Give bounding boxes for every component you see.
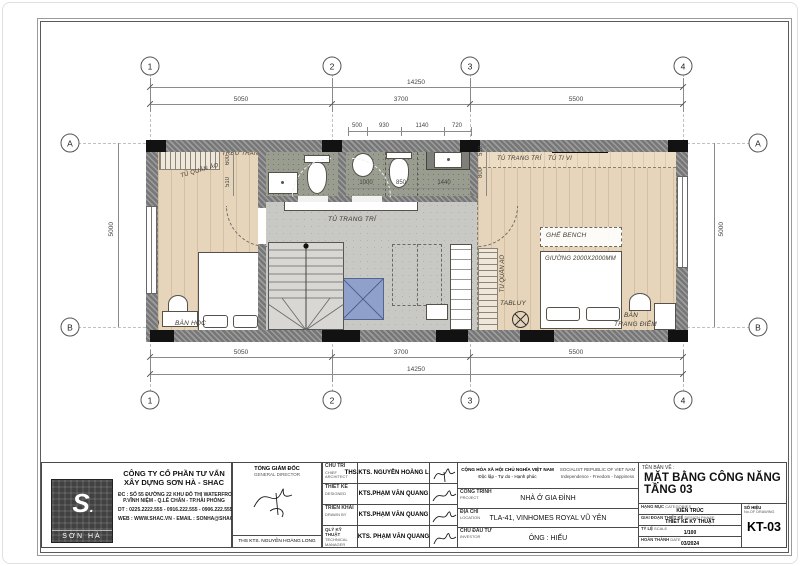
label-tabluy: TABLUY — [500, 300, 526, 307]
storage-divider — [417, 244, 418, 306]
role-en: DRAWN BY — [323, 512, 357, 518]
logo-text: SƠN HÀ — [52, 530, 112, 540]
dim-label: 5000 — [718, 222, 725, 236]
dim-label: 14250 — [407, 79, 425, 86]
grid-bubble-A-left: A — [61, 134, 80, 153]
column-block — [668, 330, 688, 342]
grid-bubble-A-right: A — [749, 134, 768, 153]
location-label-en: LOCATION — [460, 515, 480, 520]
grid-bubble-B-left: B — [61, 318, 80, 337]
staff-row-sig — [429, 462, 458, 484]
dim-label: 510 — [478, 146, 484, 156]
fan-symbol — [512, 311, 529, 328]
dim-label: 500 — [352, 123, 362, 129]
republic-en-1: SOCIALIST REPUBLIC OF VIET NAM — [557, 467, 638, 472]
dim-label: 850 — [396, 180, 406, 186]
column-block — [436, 330, 468, 342]
meta-label-vn: HẠNG MỤC — [641, 504, 664, 509]
role-vn: CHỦ TRÌ — [323, 463, 357, 470]
label-tu-trang-tri-right: TỦ TRANG TRÍ — [497, 156, 541, 162]
wall-corridor-left-b — [258, 244, 266, 330]
pillow — [586, 307, 620, 321]
staff-row-name: KTS. PHẠM VĂN QUANG — [357, 525, 430, 548]
grid-bubble-3-top: 3 — [461, 57, 480, 76]
grid-bubble-4-top: 4 — [674, 57, 693, 76]
sink-drain — [447, 158, 450, 161]
ext-line — [150, 78, 151, 112]
role-vn: TRIỂN KHAI — [323, 505, 357, 512]
dim-left — [118, 143, 119, 327]
wardrobe-right — [478, 248, 498, 332]
titleblock-republic: CỘNG HÒA XÃ HỘI CHỦ NGHĨA VIỆT NAM Độc l… — [457, 462, 639, 489]
titleblock-company: S. SƠN HÀ CÔNG TY CỔ PHẦN TƯ VẤN XÂY DỰN… — [41, 462, 232, 548]
staff-name: THS.KTS. NGUYỄN HOÀNG LONG — [345, 470, 443, 476]
project-label-en: PROJECT — [460, 495, 479, 500]
staff-name: KTS. PHẠM VĂN QUANG — [358, 534, 429, 540]
director-title-en: GENERAL DIRECTOR — [233, 472, 321, 477]
dim-label: 5050 — [234, 96, 248, 103]
signature-director — [248, 481, 308, 519]
label-ghe-bench: GHẾ BENCH — [546, 232, 586, 239]
signature — [431, 506, 458, 526]
logo-mark-icon: S. — [66, 486, 100, 520]
small-cabinet — [426, 304, 448, 320]
label-giuong: GIƯỜNG 2000X2000MM — [545, 256, 616, 262]
director-name: THS KTS. NGUYỄN HOÀNG LONG — [233, 535, 321, 547]
dim-label: 600 — [225, 155, 231, 165]
ext-line — [470, 78, 471, 112]
label-trang-diem: TRANG ĐIỂM — [614, 321, 657, 328]
company-web: WEB : WWW.SHAC.VN - EMAIL : SONHA@SHAC.V… — [118, 516, 230, 522]
meta-label-vn: GIAI ĐOẠN THIẾT KẾ — [641, 515, 683, 520]
column-block — [322, 140, 342, 152]
dim-label: 800 — [478, 168, 484, 178]
dim-label: 5500 — [569, 96, 583, 103]
republic-en-2: Independence - Freedom - happiness — [557, 474, 638, 479]
role-en: TECHNICAL MANAGER — [323, 537, 357, 547]
dim-label: 3700 — [394, 96, 408, 103]
stairs — [268, 242, 344, 330]
staff-row-sig — [429, 525, 458, 548]
grid-bubble-B-right: B — [749, 318, 768, 337]
column-block — [322, 330, 360, 342]
company-addr-2: P.VĨNH NIỆM - Q.LÊ CHÂN - TP.HẢI PHÒNG — [118, 498, 230, 504]
location-value: TLA-41, VINHOMES ROYAL VŨ YÊN — [458, 515, 638, 522]
titleblock-drawing-title: TÊN BẢN VẼ : MẶT BẰNG CÔNG NĂNG TẦNG 03 — [638, 462, 787, 504]
dim-label: 1440 — [437, 180, 450, 186]
drawing-title-1: MẶT BẰNG CÔNG NĂNG — [639, 472, 786, 484]
meta-label-vn: HOÀN THÀNH — [641, 537, 669, 542]
wall-bath-a — [258, 152, 266, 202]
wall-bath-b — [338, 152, 346, 202]
dim-label: 5000 — [108, 222, 115, 236]
number-label-en: No.OF DRAWING — [742, 510, 786, 514]
staff-row-name: THS.KTS. NGUYỄN HOÀNG LONG — [357, 462, 430, 484]
staff-row-sig — [429, 483, 458, 505]
dim-top-segments — [150, 104, 683, 105]
titleblock-location: ĐỊA CHỈLOCATION TLA-41, VINHOMES ROYAL V… — [457, 508, 639, 528]
meta-label-en: DESIGN PHASE — [685, 515, 715, 520]
drawing-sheet: TREO TRANH TỦ QUẦN ÁO BÀN HỌC TỦ TRANG T… — [0, 0, 800, 566]
dim-chain-left — [233, 152, 234, 196]
sink-drain — [281, 181, 284, 184]
company-logo: S. SƠN HÀ — [51, 479, 113, 543]
signature — [431, 485, 458, 505]
staff-row-sig — [429, 504, 458, 526]
dim-label: 1000 — [359, 180, 372, 186]
wall-top — [146, 140, 688, 152]
staff-row-name: KTS.PHẠM VĂN QUANG — [357, 483, 430, 505]
makeup-chair — [629, 293, 651, 311]
republic-vn-1: CỘNG HÒA XÃ HỘI CHỦ NGHĨA VIỆT NAM — [458, 467, 557, 472]
meta-label-en: CATEGORIES — [665, 504, 691, 509]
dim-label: 720 — [452, 123, 462, 129]
meta-label-vn: TỶ LỆ — [641, 526, 653, 531]
window-right — [677, 176, 688, 268]
ext-line — [367, 127, 368, 136]
ext-line — [471, 127, 472, 136]
dim-right — [714, 143, 715, 327]
drawing-title-label: TÊN BẢN VẼ : — [639, 463, 786, 471]
grid-bubble-2-top: 2 — [323, 57, 342, 76]
label-tu-quan-ao-right: TỦ QUẦN ÁO — [500, 255, 506, 292]
ext-line — [332, 78, 333, 112]
column-block — [460, 140, 480, 152]
titleblock-director: TỔNG GIÁM ĐỐC GENERAL DIRECTOR THS KTS. … — [232, 462, 322, 548]
dim-label: 5500 — [569, 349, 583, 356]
meta-label-en: DATE — [670, 537, 680, 542]
label-tu-trang-tri-corridor: TỦ TRANG TRÍ — [328, 216, 376, 223]
dim-chain-right — [486, 143, 487, 196]
dim-bottom-overall — [150, 374, 683, 375]
staff-name: KTS.PHẠM VĂN QUANG — [359, 512, 429, 518]
cabinet-corridor — [450, 244, 472, 330]
signature — [431, 464, 458, 484]
dim-label: 930 — [379, 123, 389, 129]
titleblock-project: CÔNG TRÌNHPROJECT NHÀ Ở GIA ĐÌNH — [457, 488, 639, 509]
label-tu-tivi: TỦ TI VI — [548, 156, 572, 162]
republic-vn-2: Độc lập - Tự do - Hạnh phúc — [458, 474, 557, 479]
dim-label: 510 — [225, 177, 231, 187]
bath-partition-glass — [417, 152, 418, 196]
grid-bubble-1-top: 1 — [141, 57, 160, 76]
dim-label: 1140 — [416, 123, 429, 129]
dim-bottom-segments — [150, 357, 683, 358]
column-block — [668, 140, 688, 152]
ext-line — [683, 78, 684, 112]
dim-top-overall — [150, 87, 683, 88]
pillow — [546, 307, 580, 321]
staff-row-role: THIẾT KẾ DESIGNED — [322, 483, 358, 505]
grid-bubble-1-bottom: 1 — [141, 391, 160, 410]
wall-bottom — [146, 330, 688, 342]
ext-line — [401, 127, 402, 136]
company-name-2: XÂY DỰNG SƠN HÀ - SHAC — [118, 478, 230, 487]
drawing-title-2: TẦNG 03 — [639, 484, 786, 496]
company-tel: DT : 0225.2222.555 - 0916.222.555 - 0906… — [118, 507, 230, 513]
drawing-number-box: SỐ HIỆU No.OF DRAWING KT-03 — [741, 503, 787, 548]
column-block — [150, 330, 174, 342]
void-skylight — [342, 278, 384, 320]
role-en: DESIGNED — [323, 491, 357, 497]
dim-bath-bottom — [348, 188, 471, 189]
grid-bubble-4-bottom: 4 — [674, 391, 693, 410]
staff-row-name: KTS.PHẠM VĂN QUANG — [357, 504, 430, 526]
makeup-desk — [654, 303, 676, 330]
role-vn: THIẾT KẾ — [323, 484, 357, 491]
pillow — [233, 315, 258, 328]
ext-line — [348, 127, 349, 136]
company-name-1: CÔNG TY CỔ PHẦN TƯ VẤN — [118, 469, 230, 478]
grid-bubble-2-bottom: 2 — [323, 391, 342, 410]
grid-bubble-3-bottom: 3 — [461, 391, 480, 410]
investor-label-en: INVESTOR — [460, 534, 480, 539]
window-left — [146, 206, 157, 294]
meta-row: HOÀN THÀNH DATE 03/2024 — [638, 536, 742, 548]
dim-label: 3700 — [394, 349, 408, 356]
role-vn: QLÝ KỸ THUẬT — [323, 526, 357, 537]
dim-label: 5050 — [234, 349, 248, 356]
titleblock-investor: CHỦ ĐẦU TƯINVESTOR ÔNG : HIẾU — [457, 527, 639, 548]
pillow — [203, 315, 228, 328]
label-ban-hoc: BÀN HỌC — [175, 320, 206, 327]
ext-line — [444, 127, 445, 136]
wall-bath-c — [470, 152, 478, 202]
staff-row-role: QLÝ KỸ THUẬT TECHNICAL MANAGER — [322, 525, 358, 548]
drawing-number: KT-03 — [742, 520, 786, 534]
staff-name: KTS.PHẠM VĂN QUANG — [359, 491, 429, 497]
column-block — [146, 140, 166, 152]
signature — [431, 527, 458, 548]
meta-label-en: SCALE — [654, 526, 667, 531]
staff-row-role: TRIỂN KHAI DRAWN BY — [322, 504, 358, 526]
dim-label: 14250 — [407, 366, 425, 373]
column-block — [520, 330, 554, 342]
label-ban: BÀN — [624, 312, 638, 319]
